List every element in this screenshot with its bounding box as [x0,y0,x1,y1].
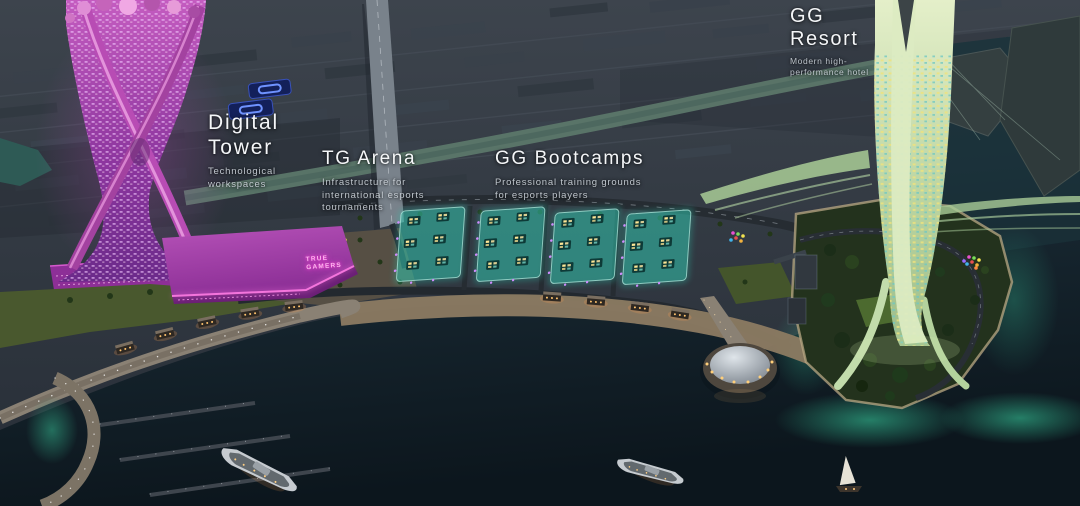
esports-district-render: Digital Tower Technological workspaces T… [0,0,1080,506]
digital-tower-title-line1: Digital [208,110,279,135]
bootcamp-cluster [547,205,622,287]
marina-glow-water [26,396,78,464]
bootcamp-cluster [619,206,694,288]
label-gg-resort: GG Resort Modern high- performance hotel [790,5,869,77]
gg-resort-subtitle: Modern high- performance hotel [790,56,869,77]
label-tg-arena: TG Arena Infrastructure for internationa… [322,147,424,215]
scene-canvas [0,0,1080,506]
bootcamp-cluster [473,203,548,285]
island-building [788,298,806,324]
gg-resort-title-line2: Resort [790,28,869,51]
label-gg-bootcamps: GG Bootcamps Professional training groun… [495,147,644,202]
label-digital-tower: Digital Tower Technological workspaces [208,110,279,191]
gg-resort-title-line1: GG [790,5,869,28]
arena-brand-sign: TRUE GAMERS [306,254,343,271]
digital-tower-subtitle: Technological workspaces [208,166,279,191]
gg-bootcamps-title: GG Bootcamps [495,147,644,171]
tg-arena-subtitle: Infrastructure for international esports… [322,177,424,215]
dome-roof [710,346,770,384]
gg-bootcamps-subtitle: Professional training grounds for esport… [495,177,644,202]
digital-tower-title-line2: Tower [208,135,279,160]
tg-arena-title: TG Arena [322,147,424,171]
island-building [795,255,817,289]
bootcamp-cluster [393,203,468,285]
